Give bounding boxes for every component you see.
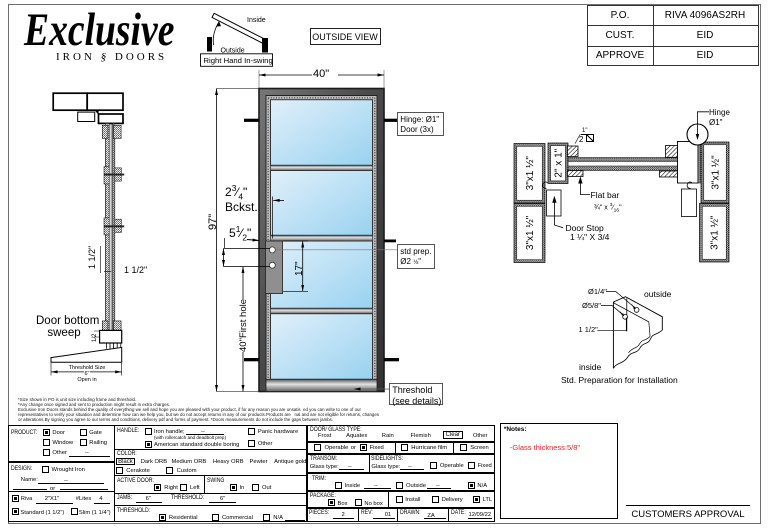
- svg-text:2" x 1": 2" x 1": [553, 148, 564, 177]
- svg-text:3"x1 ½": 3"x1 ½": [710, 155, 721, 190]
- svg-text:3"x1 ½": 3"x1 ½": [525, 156, 536, 191]
- svg-text:Inside: Inside: [247, 17, 266, 24]
- svg-text:3"x1 ½": 3"x1 ½": [710, 215, 721, 250]
- svg-text:3"x1 ½": 3"x1 ½": [525, 215, 536, 250]
